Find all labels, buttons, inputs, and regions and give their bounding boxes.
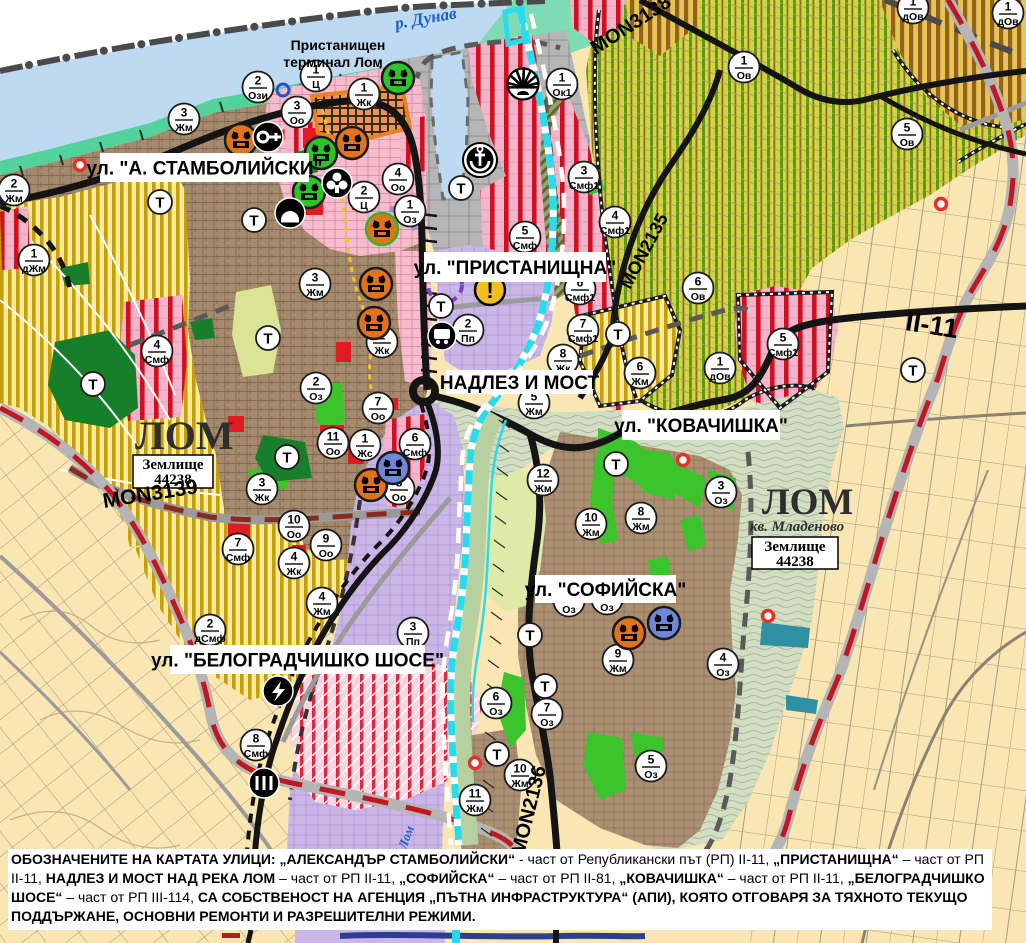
svg-text:Т: Т xyxy=(908,363,917,380)
svg-text:Т: Т xyxy=(263,331,272,348)
svg-text:4: 4 xyxy=(612,209,619,223)
svg-text:Землище: Землище xyxy=(764,539,826,555)
svg-text:1: 1 xyxy=(717,355,724,369)
svg-text:4: 4 xyxy=(154,338,161,352)
svg-text:Т: Т xyxy=(540,679,549,696)
svg-text:Оо: Оо xyxy=(319,548,334,560)
svg-text:1: 1 xyxy=(910,0,917,9)
svg-text:ул. "КОВАЧИШКА": ул. "КОВАЧИШКА" xyxy=(614,416,788,437)
svg-text:4: 4 xyxy=(720,651,727,665)
svg-text:Т: Т xyxy=(436,299,445,316)
svg-text:2: 2 xyxy=(255,74,262,88)
svg-text:3: 3 xyxy=(312,271,319,285)
svg-text:кв. Младеново: кв. Младеново xyxy=(750,519,844,535)
svg-text:Оз: Оз xyxy=(403,214,416,226)
svg-text:2: 2 xyxy=(465,317,472,331)
svg-text:дОв: дОв xyxy=(902,11,924,23)
svg-text:Смф1: Смф1 xyxy=(768,347,798,359)
svg-text:9: 9 xyxy=(323,532,330,546)
svg-text:Жм: Жм xyxy=(608,663,626,675)
svg-text:ул. "А. СТАМБОЛИЙСКИ": ул. "А. СТАМБОЛИЙСКИ" xyxy=(86,157,322,179)
svg-text:Оо: Оо xyxy=(287,529,302,541)
svg-text:8: 8 xyxy=(638,505,645,519)
svg-text:3: 3 xyxy=(181,106,188,120)
svg-text:1: 1 xyxy=(407,198,414,212)
svg-text:Смф: Смф xyxy=(403,447,427,459)
svg-text:Т: Т xyxy=(155,195,164,212)
svg-text:Т: Т xyxy=(282,450,291,467)
svg-text:Жм: Жм xyxy=(581,527,599,539)
svg-text:дЖм: дЖм xyxy=(22,263,46,275)
svg-text:7: 7 xyxy=(580,317,587,331)
svg-text:II-11, НАДЛЕЗ И МОСТ НАД РЕКА: II-11, НАДЛЕЗ И МОСТ НАД РЕКА ЛОМ – част… xyxy=(11,869,985,886)
svg-text:НАДЛЕЗ И МОСТ: НАДЛЕЗ И МОСТ xyxy=(440,373,600,394)
svg-text:7: 7 xyxy=(235,536,242,550)
svg-text:Смф1: Смф1 xyxy=(565,292,595,304)
svg-text:ПОДДЪРЖАНЕ, ОСНОВНИ РЕМОНТИ И: ПОДДЪРЖАНЕ, ОСНОВНИ РЕМОНТИ И РАЗРЕШИТЕЛ… xyxy=(11,908,476,924)
svg-text:ул. "СОФИЙСКА": ул. "СОФИЙСКА" xyxy=(525,579,687,601)
svg-text:ЛОМ: ЛОМ xyxy=(762,482,853,523)
svg-text:Т: Т xyxy=(611,457,620,474)
svg-text:терминал Лом: терминал Лом xyxy=(283,54,383,70)
svg-text:6: 6 xyxy=(493,690,500,704)
svg-text:ул. "БЕЛОГРАДЧИШКО ШОСЕ": ул. "БЕЛОГРАДЧИШКО ШОСЕ" xyxy=(151,650,444,671)
svg-text:Жм: Жм xyxy=(630,376,648,388)
svg-text:Смф1: Смф1 xyxy=(568,333,598,345)
svg-text:Жк: Жк xyxy=(356,97,372,109)
svg-text:Жм: Жм xyxy=(465,803,483,815)
svg-text:6: 6 xyxy=(695,275,702,289)
svg-text:Оз: Оз xyxy=(309,391,322,403)
svg-text:Ов: Ов xyxy=(737,70,752,82)
svg-text:5: 5 xyxy=(648,753,655,767)
svg-text:Землище: Землище xyxy=(142,457,204,473)
svg-text:10: 10 xyxy=(287,513,301,527)
svg-text:дОв: дОв xyxy=(997,16,1019,28)
svg-text:Смф: Смф xyxy=(226,552,250,564)
svg-text:Жм: Жм xyxy=(312,606,330,618)
svg-text:7: 7 xyxy=(544,701,551,715)
svg-text:Смф1: Смф1 xyxy=(600,225,630,237)
svg-text:4: 4 xyxy=(319,590,326,604)
svg-text:Жм: Жм xyxy=(524,406,542,418)
svg-text:5: 5 xyxy=(904,121,911,135)
svg-text:дСмф: дСмф xyxy=(194,633,225,645)
svg-text:Ц: Ц xyxy=(312,79,320,91)
svg-text:Т: Т xyxy=(456,181,465,198)
svg-text:44238: 44238 xyxy=(776,554,814,570)
svg-text:7: 7 xyxy=(375,395,382,409)
svg-text:1: 1 xyxy=(559,71,566,85)
svg-text:Жм: Жм xyxy=(174,122,192,134)
svg-text:Т: Т xyxy=(249,213,258,230)
svg-text:ОБОЗНАЧЕНИТЕ НА КАРТАТА УЛИЦИ:: ОБОЗНАЧЕНИТЕ НА КАРТАТА УЛИЦИ: „АЛЕКСАНД… xyxy=(11,850,984,867)
svg-text:Ок1: Ок1 xyxy=(552,87,571,99)
svg-text:10: 10 xyxy=(584,511,598,525)
svg-text:2: 2 xyxy=(11,177,18,191)
svg-text:12: 12 xyxy=(536,467,550,481)
svg-text:ул. "ПРИСТАНИЩНА": ул. "ПРИСТАНИЩНА" xyxy=(414,258,617,279)
svg-text:Жк: Жк xyxy=(286,566,302,578)
svg-text:Т: Т xyxy=(88,377,97,394)
svg-text:3: 3 xyxy=(294,99,301,113)
svg-text:ЛОМ: ЛОМ xyxy=(135,413,234,458)
svg-text:11: 11 xyxy=(469,787,482,801)
svg-text:Оз: Оз xyxy=(644,769,657,781)
svg-text:Оз: Оз xyxy=(714,495,727,507)
svg-text:2: 2 xyxy=(313,375,320,389)
svg-text:9: 9 xyxy=(615,647,622,661)
svg-text:Ов: Ов xyxy=(691,291,706,303)
svg-text:Смф: Смф xyxy=(244,748,268,760)
svg-text:Смф: Смф xyxy=(513,240,537,252)
svg-text:Оо: Оо xyxy=(392,492,407,504)
svg-text:Т: Т xyxy=(613,327,622,344)
svg-text:Т: Т xyxy=(525,628,534,645)
svg-text:5: 5 xyxy=(522,224,529,238)
svg-text:4: 4 xyxy=(395,166,402,180)
svg-text:Оз: Оз xyxy=(716,667,729,679)
svg-text:Пристанищен: Пристанищен xyxy=(291,37,386,53)
svg-text:Оо: Оо xyxy=(391,182,406,194)
svg-text:Жк: Жк xyxy=(254,492,270,504)
svg-text:6: 6 xyxy=(637,360,644,374)
svg-text:ШОСЕ“ – част от РП III-114, СА: ШОСЕ“ – част от РП III-114, СА СОБСТВЕНО… xyxy=(11,889,968,905)
svg-text:Жс: Жс xyxy=(356,448,372,460)
svg-text:8: 8 xyxy=(253,732,260,746)
svg-text:1: 1 xyxy=(361,81,368,95)
svg-text:2: 2 xyxy=(361,184,368,198)
svg-text:Оз: Оз xyxy=(540,717,553,729)
svg-text:Смф: Смф xyxy=(145,354,169,366)
svg-text:Оз: Оз xyxy=(562,604,575,616)
svg-text:10: 10 xyxy=(513,762,527,776)
svg-text:Ц: Ц xyxy=(360,200,368,212)
svg-text:Оо: Оо xyxy=(371,411,386,423)
svg-text:Оо: Оо xyxy=(326,446,341,458)
svg-text:8: 8 xyxy=(560,347,567,361)
svg-text:4: 4 xyxy=(291,550,298,564)
svg-text:5: 5 xyxy=(780,331,787,345)
svg-text:Оз: Оз xyxy=(489,706,502,718)
svg-text:Ов: Ов xyxy=(900,137,915,149)
svg-text:Пп: Пп xyxy=(461,333,475,345)
svg-text:6: 6 xyxy=(412,431,419,445)
svg-text:11: 11 xyxy=(327,430,340,444)
svg-text:Жм: Жм xyxy=(305,287,323,299)
svg-text:3: 3 xyxy=(581,164,588,178)
svg-text:Т: Т xyxy=(492,747,501,764)
svg-text:Жм: Жм xyxy=(4,193,22,205)
svg-text:2: 2 xyxy=(207,617,214,631)
svg-text:Жм: Жм xyxy=(631,521,649,533)
svg-text:Жм: Жм xyxy=(533,483,551,495)
svg-text:1: 1 xyxy=(1005,0,1012,14)
svg-text:3: 3 xyxy=(718,479,725,493)
svg-text:3: 3 xyxy=(410,620,417,634)
svg-text:Оз: Оз xyxy=(600,602,613,614)
svg-text:3: 3 xyxy=(259,476,266,490)
svg-text:1: 1 xyxy=(741,54,748,68)
svg-text:1: 1 xyxy=(362,432,369,446)
svg-text:Оо: Оо xyxy=(290,115,305,127)
svg-text:Жк: Жк xyxy=(374,345,390,357)
svg-text:дОв: дОв xyxy=(709,371,731,383)
svg-text:Смф1: Смф1 xyxy=(569,180,599,192)
svg-text:1: 1 xyxy=(31,247,38,261)
svg-text:Ози: Ози xyxy=(248,90,268,102)
